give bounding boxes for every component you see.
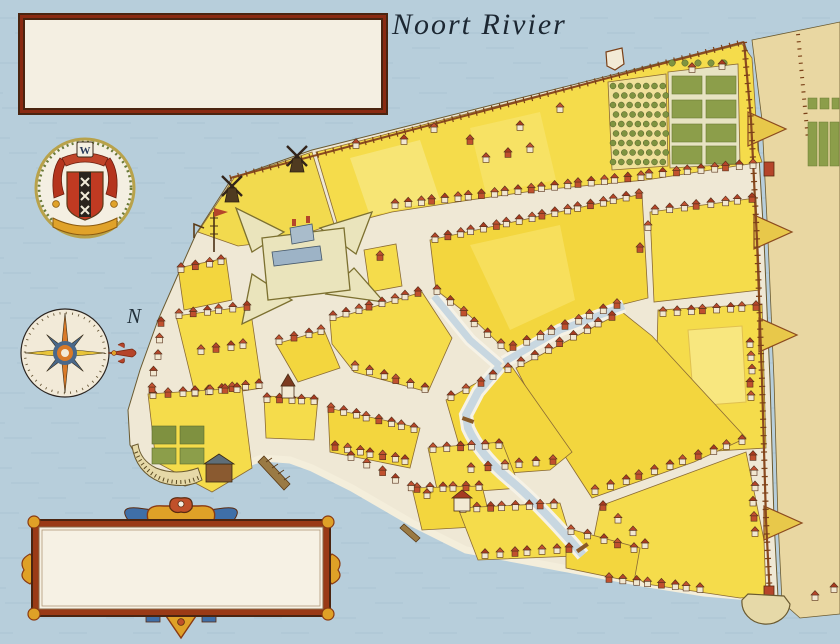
map-canvas: N W Noort Rivier Anchorage [0,0,840,644]
church-building [282,386,294,398]
stadt-huys [454,498,470,511]
church-tower [306,216,310,223]
cartouche-frame [18,496,344,642]
arms-monogram: W [80,145,91,157]
north-label: N [126,304,142,328]
church-tower [292,219,296,226]
coat-of-arms: W [36,139,134,237]
water-gate-e [764,162,774,176]
manor-house [206,464,232,482]
river-title: Noort Rivier [392,8,567,42]
street-legend [20,15,386,113]
fort-church [290,224,314,244]
title-cartouche [18,496,344,642]
